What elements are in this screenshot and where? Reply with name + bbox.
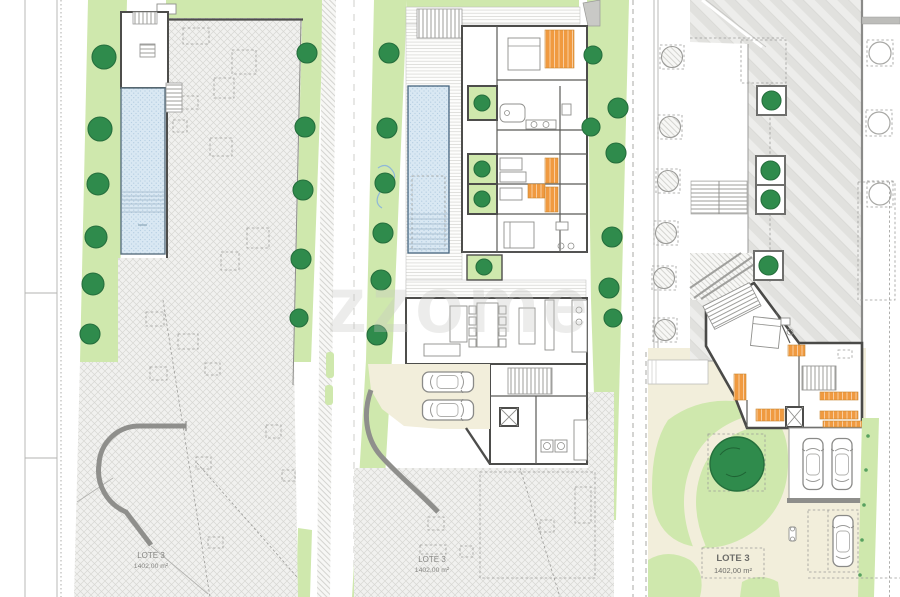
tree-outline-icon (868, 112, 890, 134)
entrance-path (648, 360, 708, 384)
tree-icon (377, 118, 397, 138)
wardrobe (788, 345, 805, 356)
tree-icon (584, 46, 602, 64)
lot-label: LOTE 3 (716, 553, 749, 564)
street-margin-left (25, 0, 61, 597)
tree-icon (762, 91, 781, 110)
existing-tree-icon (660, 117, 681, 138)
toilet (562, 104, 571, 115)
tree-icon (761, 161, 780, 180)
stairs (802, 366, 836, 390)
side-stairs (166, 83, 182, 112)
tree-icon (604, 309, 622, 327)
car (423, 399, 474, 421)
panel-left-site-plan (74, 0, 324, 597)
large-tree-icon (710, 437, 764, 491)
tree-outline-icon (869, 42, 891, 64)
tree-icon (379, 43, 399, 63)
tree-icon (290, 309, 308, 327)
tree-icon (474, 191, 490, 207)
tree-icon (293, 180, 313, 200)
tree-icon (295, 117, 315, 137)
lawn-top (166, 0, 306, 18)
existing-tree-icon (656, 223, 677, 244)
tree-icon (87, 173, 109, 195)
tree-outline-icon (869, 183, 891, 205)
tree-icon (82, 273, 104, 295)
wardrobe (528, 184, 545, 198)
wardrobe (820, 411, 858, 419)
tree-icon (92, 45, 116, 69)
wardrobe (820, 392, 858, 400)
car (831, 439, 853, 490)
lot-area: 1402,00 m² (134, 563, 169, 570)
tree-icon (602, 227, 622, 247)
tree-icon (297, 43, 317, 63)
lot-area: 1402,00 m² (415, 567, 450, 574)
street-trees-existing (652, 45, 684, 342)
lot-label: LOTE 3 (137, 551, 165, 560)
lot-area: 1402,00 m² (714, 566, 752, 575)
tree-icon (599, 278, 619, 298)
motorbike (789, 527, 796, 541)
wardrobe (734, 374, 746, 400)
existing-tree-icon (655, 320, 676, 341)
panel-right-site-plan (646, 0, 900, 597)
tree-icon (291, 249, 311, 269)
bed (751, 317, 782, 349)
tree-icon (88, 117, 112, 141)
exterior-stairs (417, 9, 462, 38)
washer (555, 440, 567, 452)
tree-icon (474, 95, 490, 111)
existing-tree-icon (658, 171, 679, 192)
swimming-pool (408, 86, 449, 253)
neighbor-wall (862, 17, 900, 24)
roof-planters (754, 86, 786, 280)
bed (504, 222, 534, 248)
tree-icon (85, 226, 107, 248)
existing-tree-icon (654, 268, 675, 289)
swimming-pool (121, 88, 165, 254)
bathtub (500, 104, 525, 122)
roof-walkway (690, 42, 748, 253)
washer (541, 440, 553, 452)
site-plans-drawing: zzome LOTE 3 1402,00 m² LOTE 3 1402,00 m… (0, 0, 900, 597)
architectural-sheet: zzome LOTE 3 1402,00 m² LOTE 3 1402,00 m… (0, 0, 900, 597)
garden-wall (787, 498, 867, 503)
parking-pad (789, 428, 866, 499)
lawn-sliver (296, 528, 312, 597)
tree-icon (761, 190, 780, 209)
car (832, 516, 854, 567)
tree-icon (582, 118, 600, 136)
existing-tree-icon (662, 47, 683, 68)
watermark: zzome (327, 260, 592, 349)
tree-icon (608, 98, 628, 118)
tree-icon (606, 143, 626, 163)
lot-label: LOTE 3 (418, 555, 446, 564)
tree-icon (474, 161, 490, 177)
tree-icon (80, 324, 100, 344)
skylight-grille (140, 44, 155, 57)
car (423, 371, 474, 393)
wardrobe (756, 409, 784, 421)
neighbor-ramp (583, 0, 600, 26)
tree-icon (375, 173, 395, 193)
stairs (133, 12, 157, 24)
wardrobe (545, 158, 558, 183)
car (802, 439, 824, 490)
wardrobe (545, 187, 558, 212)
tree-icon (373, 223, 393, 243)
bed (508, 38, 540, 70)
stairs (508, 368, 552, 394)
tree-icon (759, 256, 778, 275)
wardrobe (545, 30, 574, 68)
